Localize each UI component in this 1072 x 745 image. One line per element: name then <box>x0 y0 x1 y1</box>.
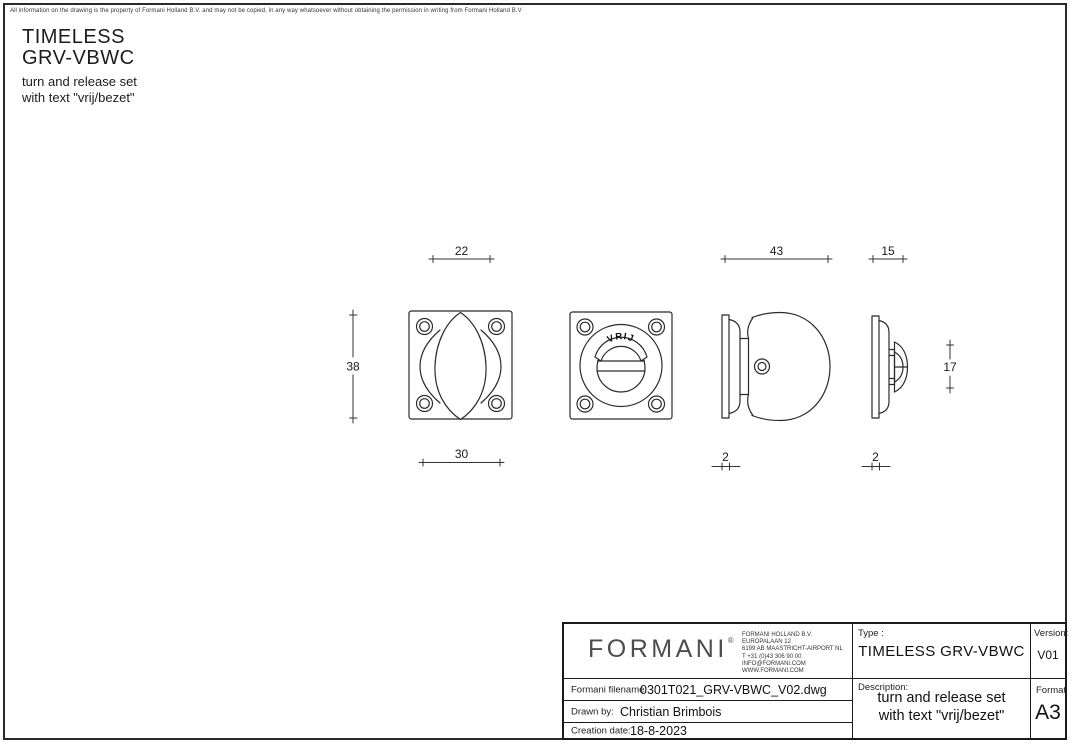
description-line2: with text "vrij/bezet" <box>853 708 1030 724</box>
dim-knob-depth: 43 <box>770 244 784 258</box>
filename-row: Formani filename: 0301T021_GRV-VBWC_V02.… <box>564 679 852 700</box>
side-view-release <box>872 316 908 418</box>
type-value: TIMELESS GRV-VBWC <box>853 643 1030 660</box>
back-view-indicator: VRIJ <box>570 312 672 419</box>
set-screw <box>755 359 770 374</box>
company-address: FORMANI HOLLAND B.V. EUROPALAAN 12 6199 … <box>742 632 843 675</box>
creation-date-value: 18-8-2023 <box>630 724 687 738</box>
drawn-by-label: Drawn by: <box>571 706 614 717</box>
rosette-plate-side <box>722 315 729 418</box>
type-cell: Type : TIMELESS GRV-VBWC <box>853 624 1030 678</box>
dim-plate-thickness-release: 2 <box>872 450 879 464</box>
rosette-plate-side <box>872 316 879 418</box>
description-cell: Description: turn and release set with t… <box>853 679 1030 738</box>
side-view-knob <box>722 313 830 421</box>
creation-date-row: Creation date: 18-8-2023 <box>564 723 852 738</box>
version-value: V01 <box>1031 648 1065 662</box>
drawn-by-value: Christian Brimbois <box>620 705 721 719</box>
filename-value: 0301T021_GRV-VBWC_V02.dwg <box>640 683 827 697</box>
filename-label: Formani filename: <box>571 684 647 695</box>
oval-knob-outline <box>435 313 486 420</box>
format-label: Format <box>1036 685 1066 696</box>
title-block: FORMANI® FORMANI HOLLAND B.V. EUROPALAAN… <box>562 622 1067 740</box>
dim-release-height: 17 <box>943 360 957 374</box>
type-label: Type : <box>858 628 884 639</box>
dim-front-width-top: 22 <box>455 244 469 258</box>
creation-date-label: Creation date: <box>571 725 631 736</box>
version-cell: Version: V01 <box>1031 624 1065 678</box>
description-line1: turn and release set <box>853 690 1030 706</box>
version-label: Version: <box>1034 628 1068 639</box>
front-view-turn-knob <box>409 311 512 420</box>
rosette-bevel <box>729 320 740 414</box>
logo-cell: FORMANI® FORMANI HOLLAND B.V. EUROPALAAN… <box>564 624 852 678</box>
knob-dome <box>752 313 830 421</box>
drawn-by-row: Drawn by: Christian Brimbois <box>564 701 852 722</box>
dim-release-depth: 15 <box>881 244 895 258</box>
format-cell: Format A3 <box>1031 679 1065 738</box>
dim-front-width-bottom: 30 <box>455 447 469 461</box>
format-value: A3 <box>1031 701 1065 725</box>
dim-plate-thickness-knob: 2 <box>722 450 729 464</box>
rosette-bevel <box>879 321 889 414</box>
dim-front-height: 38 <box>346 360 360 374</box>
knob-neck <box>748 318 753 416</box>
formani-logo: FORMANI® <box>588 635 734 664</box>
registered-trademark-icon: ® <box>728 636 734 645</box>
